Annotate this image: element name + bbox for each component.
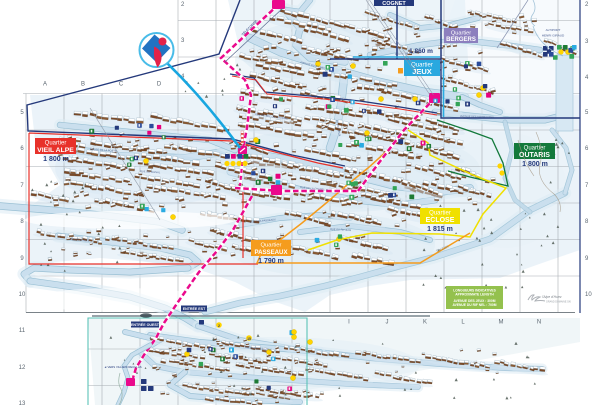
- svg-text:12: 12: [19, 365, 26, 371]
- svg-text:15: 15: [247, 337, 251, 341]
- svg-text:10: 10: [19, 292, 26, 298]
- svg-text:1 815 m: 1 815 m: [427, 226, 453, 233]
- svg-text:2: 2: [585, 2, 589, 8]
- svg-text:13: 13: [19, 401, 26, 405]
- svg-text:ALTIPORT: ALTIPORT: [546, 28, 561, 32]
- svg-text:9: 9: [20, 256, 24, 262]
- svg-text:Quartier: Quartier: [429, 211, 451, 217]
- svg-text:COGNET: COGNET: [382, 1, 406, 7]
- svg-text:M: M: [499, 320, 504, 326]
- svg-text:◄ VERS VILLARD RECULAS: ◄ VERS VILLARD RECULAS: [104, 365, 142, 369]
- svg-text:9: 9: [585, 256, 589, 262]
- svg-text:ECLOSE: ECLOSE: [426, 217, 455, 224]
- svg-text:GRAND DOMAINE SKI: GRAND DOMAINE SKI: [546, 301, 571, 304]
- svg-text:1 790 m: 1 790 m: [258, 258, 284, 265]
- svg-text:D: D: [157, 82, 162, 88]
- svg-text:BERGERS: BERGERS: [446, 37, 476, 43]
- svg-text:APPROXIMATE LENGTH: APPROXIMATE LENGTH: [455, 293, 494, 297]
- svg-text:JEUX: JEUX: [412, 67, 432, 76]
- svg-text:J: J: [386, 320, 389, 326]
- svg-text:8: 8: [20, 219, 24, 225]
- svg-text:6: 6: [585, 146, 589, 152]
- svg-text:2: 2: [218, 324, 220, 328]
- svg-text:7: 7: [20, 183, 24, 189]
- svg-text:C: C: [119, 82, 124, 88]
- svg-text:4: 4: [585, 75, 589, 81]
- svg-text:K: K: [423, 320, 427, 326]
- svg-text:Quartier: Quartier: [261, 243, 282, 249]
- svg-text:PASSEAUX: PASSEAUX: [254, 249, 288, 256]
- svg-text:AVENUE DU RIF NEL : 700M: AVENUE DU RIF NEL : 700M: [452, 303, 496, 307]
- svg-text:3: 3: [181, 38, 185, 44]
- svg-text:3: 3: [585, 39, 589, 45]
- svg-text:Quartier: Quartier: [451, 30, 471, 36]
- svg-text:A: A: [43, 82, 47, 88]
- svg-text:VIEIL ALPE: VIEIL ALPE: [37, 147, 74, 154]
- svg-text:6: 6: [20, 146, 24, 152]
- svg-text:10: 10: [585, 292, 592, 298]
- svg-text:OUTARIS: OUTARIS: [519, 152, 550, 159]
- svg-text:1 800 m: 1 800 m: [43, 156, 69, 163]
- svg-text:ENTRÉE OUEST: ENTRÉE OUEST: [131, 322, 160, 327]
- svg-text:HENRI GIRAUD: HENRI GIRAUD: [542, 34, 565, 38]
- svg-text:8: 8: [585, 219, 589, 225]
- svg-text:N: N: [537, 320, 541, 326]
- svg-text:B: B: [81, 82, 85, 88]
- svg-text:Quartier: Quartier: [45, 141, 67, 147]
- svg-text:11: 11: [19, 328, 26, 334]
- svg-text:5: 5: [20, 110, 24, 116]
- svg-text:ENTRÉE EST: ENTRÉE EST: [183, 306, 206, 311]
- svg-text:Quartier: Quartier: [524, 146, 546, 152]
- svg-text:5: 5: [585, 110, 589, 116]
- svg-text:7: 7: [585, 183, 589, 189]
- svg-text:2: 2: [181, 2, 185, 8]
- svg-text:l'Alpe d'Huez: l'Alpe d'Huez: [542, 295, 562, 299]
